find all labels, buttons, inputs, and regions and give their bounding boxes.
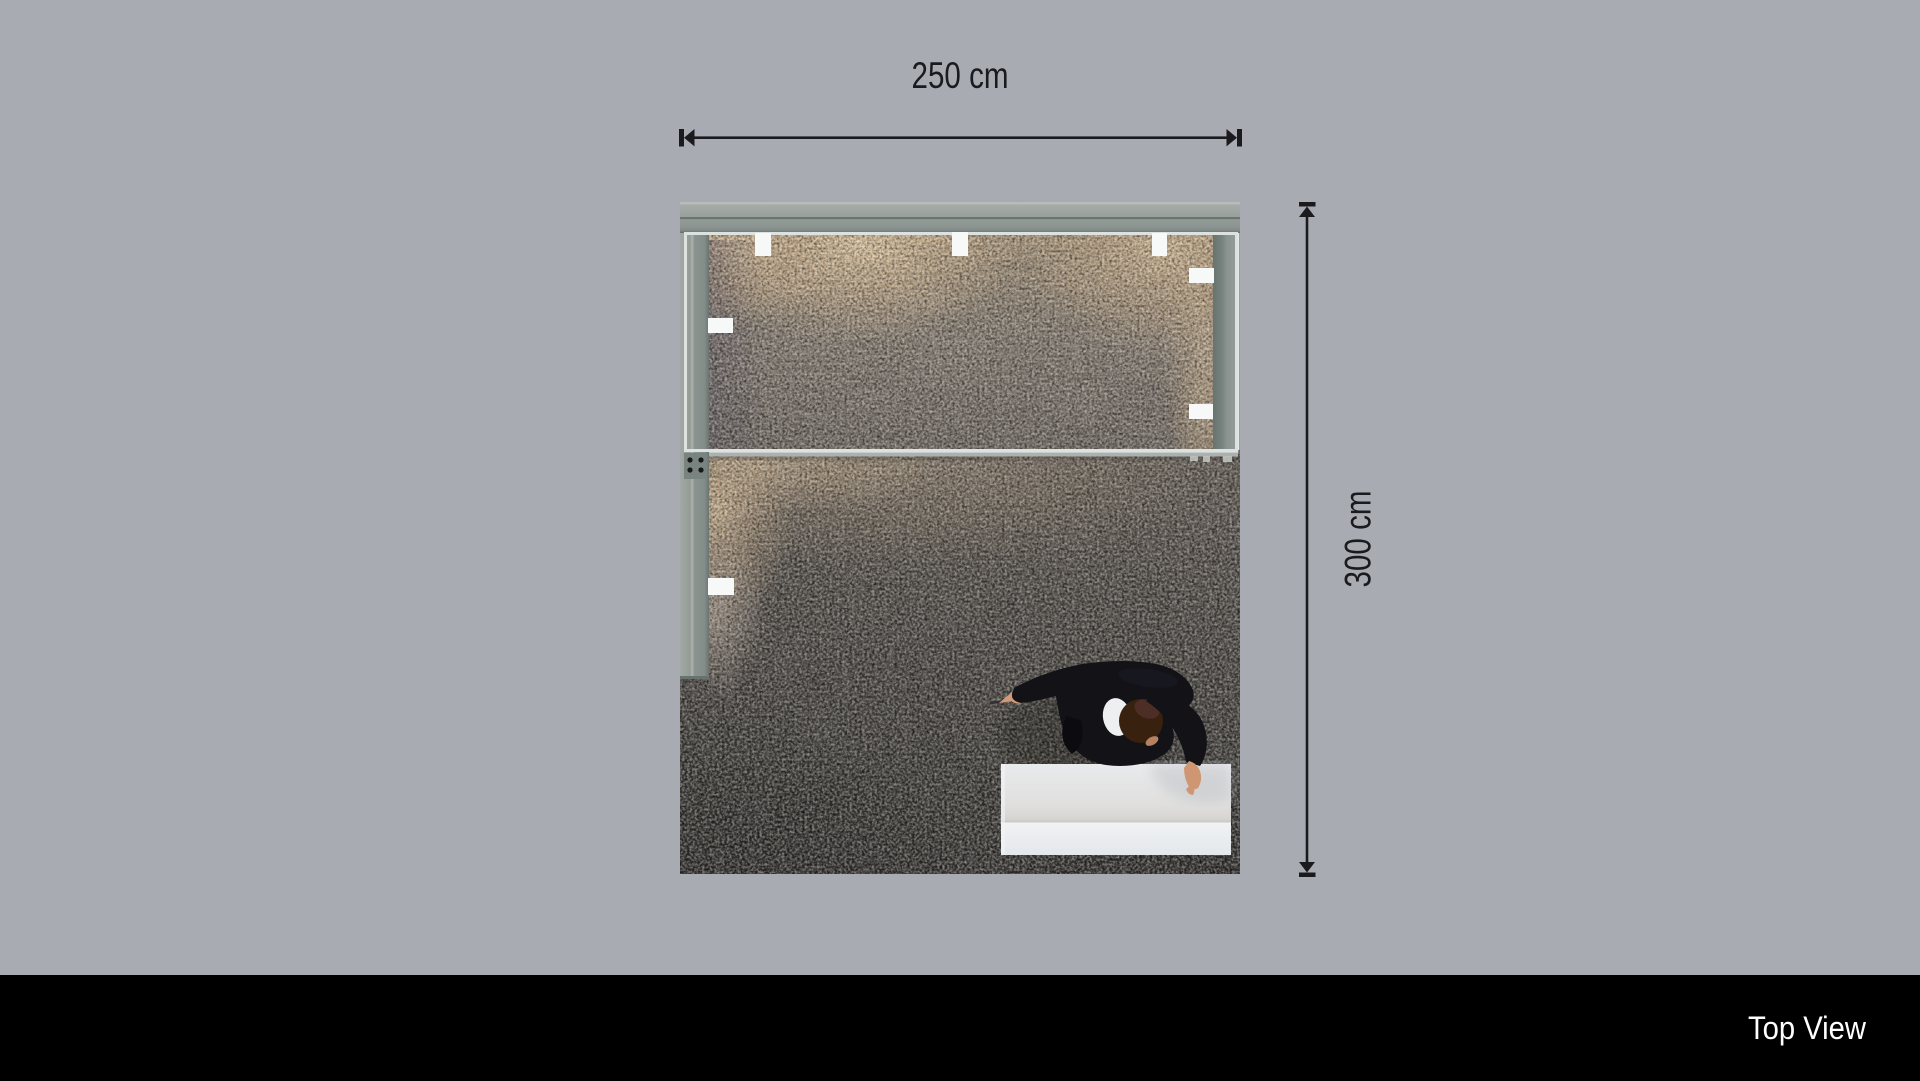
svg-text:250 cm: 250 cm [912, 55, 1009, 96]
svg-text:Top View: Top View [1748, 1010, 1867, 1046]
svg-text:300 cm: 300 cm [1338, 491, 1379, 588]
